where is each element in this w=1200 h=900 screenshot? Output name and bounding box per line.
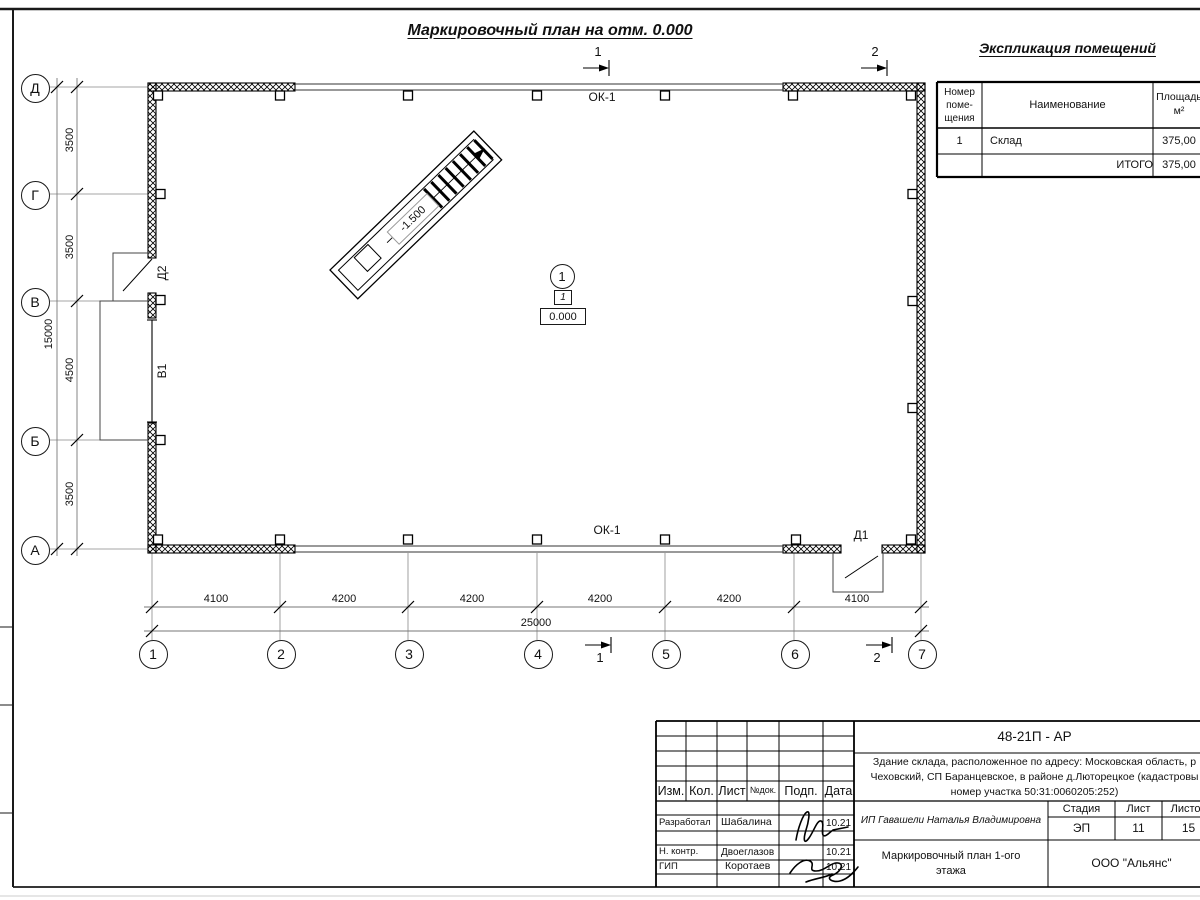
titleblock-sheet-value: 11 bbox=[1115, 817, 1162, 840]
axis-bubble-6: 6 bbox=[781, 640, 810, 669]
dim-left-total: 15000 bbox=[42, 299, 56, 369]
dim-bottom-6: 4100 bbox=[827, 593, 887, 606]
dim-bottom-3: 4200 bbox=[442, 593, 502, 606]
dim-bottom-2: 4200 bbox=[314, 593, 374, 606]
titleblock-role-3: ГИП bbox=[659, 860, 717, 874]
axis-bubble-5: 5 bbox=[652, 640, 681, 669]
titleblock-role-1: Разработал bbox=[659, 815, 717, 831]
gate-mark-v1: В1 bbox=[156, 356, 170, 386]
titleblock-description: Здание склада, расположенное по адресу: … bbox=[856, 753, 1200, 801]
titleblock-stage-label: Стадия bbox=[1048, 801, 1115, 817]
axis-label: 6 bbox=[791, 646, 799, 662]
columns bbox=[154, 91, 918, 544]
axis-bubble-d: Д bbox=[21, 74, 50, 103]
drawing-sheet: { "sheet_title": "Маркировочный план на … bbox=[0, 0, 1200, 900]
explication-total-label: ИТОГО bbox=[982, 154, 1161, 177]
titleblock-name-2: Двоеглазов bbox=[721, 845, 779, 860]
dim-bottom-4: 4200 bbox=[570, 593, 630, 606]
titleblock-stage-value: ЭП bbox=[1048, 817, 1115, 840]
titleblock-col-data: Дата bbox=[823, 781, 854, 801]
window-mark-top: ОК-1 bbox=[577, 91, 627, 105]
titleblock-col-kol: Кол. bbox=[686, 781, 717, 801]
section-1-top-label: 1 bbox=[590, 45, 606, 60]
axis-label: В bbox=[30, 294, 39, 310]
loading-platform bbox=[100, 301, 148, 440]
explication-col-area: Площадь м² bbox=[1153, 82, 1200, 128]
titleblock-name-1: Шабалина bbox=[721, 815, 779, 831]
axis-bubble-b: Б bbox=[21, 427, 50, 456]
titleblock-col-list: Лист bbox=[717, 781, 747, 801]
titleblock-name-3: Коротаев bbox=[725, 860, 779, 874]
axis-label: 4 bbox=[534, 646, 542, 662]
axis-bubble-g: Г bbox=[21, 181, 50, 210]
axis-label: Г bbox=[31, 187, 39, 203]
titleblock-doc-number: 48-21П - АР bbox=[854, 721, 1200, 753]
axis-bubble-2: 2 bbox=[267, 640, 296, 669]
axis-bubble-a: А bbox=[21, 536, 50, 565]
titleblock-date-1: 10.21 bbox=[823, 815, 854, 831]
sheet-title: Маркировочный план на отм. 0.000 bbox=[380, 20, 720, 42]
section-marks bbox=[583, 60, 892, 653]
titleblock-role-2: Н. контр. bbox=[659, 845, 717, 860]
titleblock-col-izm: Изм. bbox=[656, 781, 686, 801]
building-walls bbox=[148, 83, 925, 553]
explication-col-number: Номер поме- щения bbox=[937, 82, 982, 128]
axis-bubble-7: 7 bbox=[908, 640, 937, 669]
axis-label: Д bbox=[30, 80, 39, 96]
dim-bottom-total: 25000 bbox=[506, 617, 566, 630]
titleblock-date-2: 10.21 bbox=[823, 845, 854, 860]
dim-bottom-5: 4200 bbox=[699, 593, 759, 606]
dim-bottom-1: 4100 bbox=[186, 593, 246, 606]
axis-bubble-4: 4 bbox=[524, 640, 553, 669]
room-number-bubble: 1 bbox=[550, 264, 575, 289]
axis-label: 7 bbox=[918, 646, 926, 662]
explication-total-area: 375,00 bbox=[1153, 154, 1200, 177]
section-2-top-label: 2 bbox=[867, 45, 883, 60]
axis-label: 1 bbox=[149, 646, 157, 662]
axis-bubble-3: 3 bbox=[395, 640, 424, 669]
section-2-bottom-label: 2 bbox=[869, 651, 885, 666]
axis-label: 2 bbox=[277, 646, 285, 662]
titleblock-col-podp: Подп. bbox=[779, 781, 823, 801]
window-mark-bottom: ОК-1 bbox=[582, 524, 632, 538]
dim-left-4: 3500 bbox=[63, 464, 77, 524]
titleblock-date-3: 10.21 bbox=[823, 860, 854, 874]
axis-label: Б bbox=[30, 433, 39, 449]
room-type-tag: 1 bbox=[554, 290, 572, 305]
explication-row-name: Склад bbox=[982, 128, 1161, 154]
axis-label: А bbox=[30, 542, 39, 558]
dim-left-2: 3500 bbox=[63, 217, 77, 277]
axis-label: 3 bbox=[405, 646, 413, 662]
window-bands bbox=[295, 84, 783, 552]
door-d2-porch bbox=[113, 253, 152, 301]
axis-label: 5 bbox=[662, 646, 670, 662]
floor-level-mark: 0.000 bbox=[540, 308, 586, 325]
section-1-bottom-label: 1 bbox=[592, 651, 608, 666]
explication-row-area: 375,00 bbox=[1153, 128, 1200, 154]
explication-title: Экспликация помещений bbox=[945, 39, 1190, 58]
titleblock-company: ООО "Альянс" bbox=[1048, 840, 1200, 887]
titleblock-sheet-label: Лист bbox=[1115, 801, 1162, 817]
titleblock-col-ndok: №док. bbox=[747, 781, 779, 801]
door-d1-vestibule bbox=[833, 553, 883, 592]
room-number: 1 bbox=[558, 269, 565, 284]
titleblock-doc-title: Маркировочный план 1-ого этажа bbox=[854, 840, 1048, 887]
explication-col-name: Наименование bbox=[982, 82, 1153, 128]
titleblock-sheets-label: Листов bbox=[1162, 801, 1200, 817]
titleblock-sheets-value: 15 bbox=[1162, 817, 1200, 840]
dim-left-3: 4500 bbox=[63, 340, 77, 400]
titleblock-client: ИП Гавашели Наталья Владимировна bbox=[854, 801, 1048, 840]
explication-row-number: 1 bbox=[937, 128, 982, 154]
door-mark-d2: Д2 bbox=[156, 258, 170, 288]
axis-bubble-1: 1 bbox=[139, 640, 168, 669]
dim-left-1: 3500 bbox=[63, 110, 77, 170]
door-mark-d1: Д1 bbox=[838, 528, 884, 543]
